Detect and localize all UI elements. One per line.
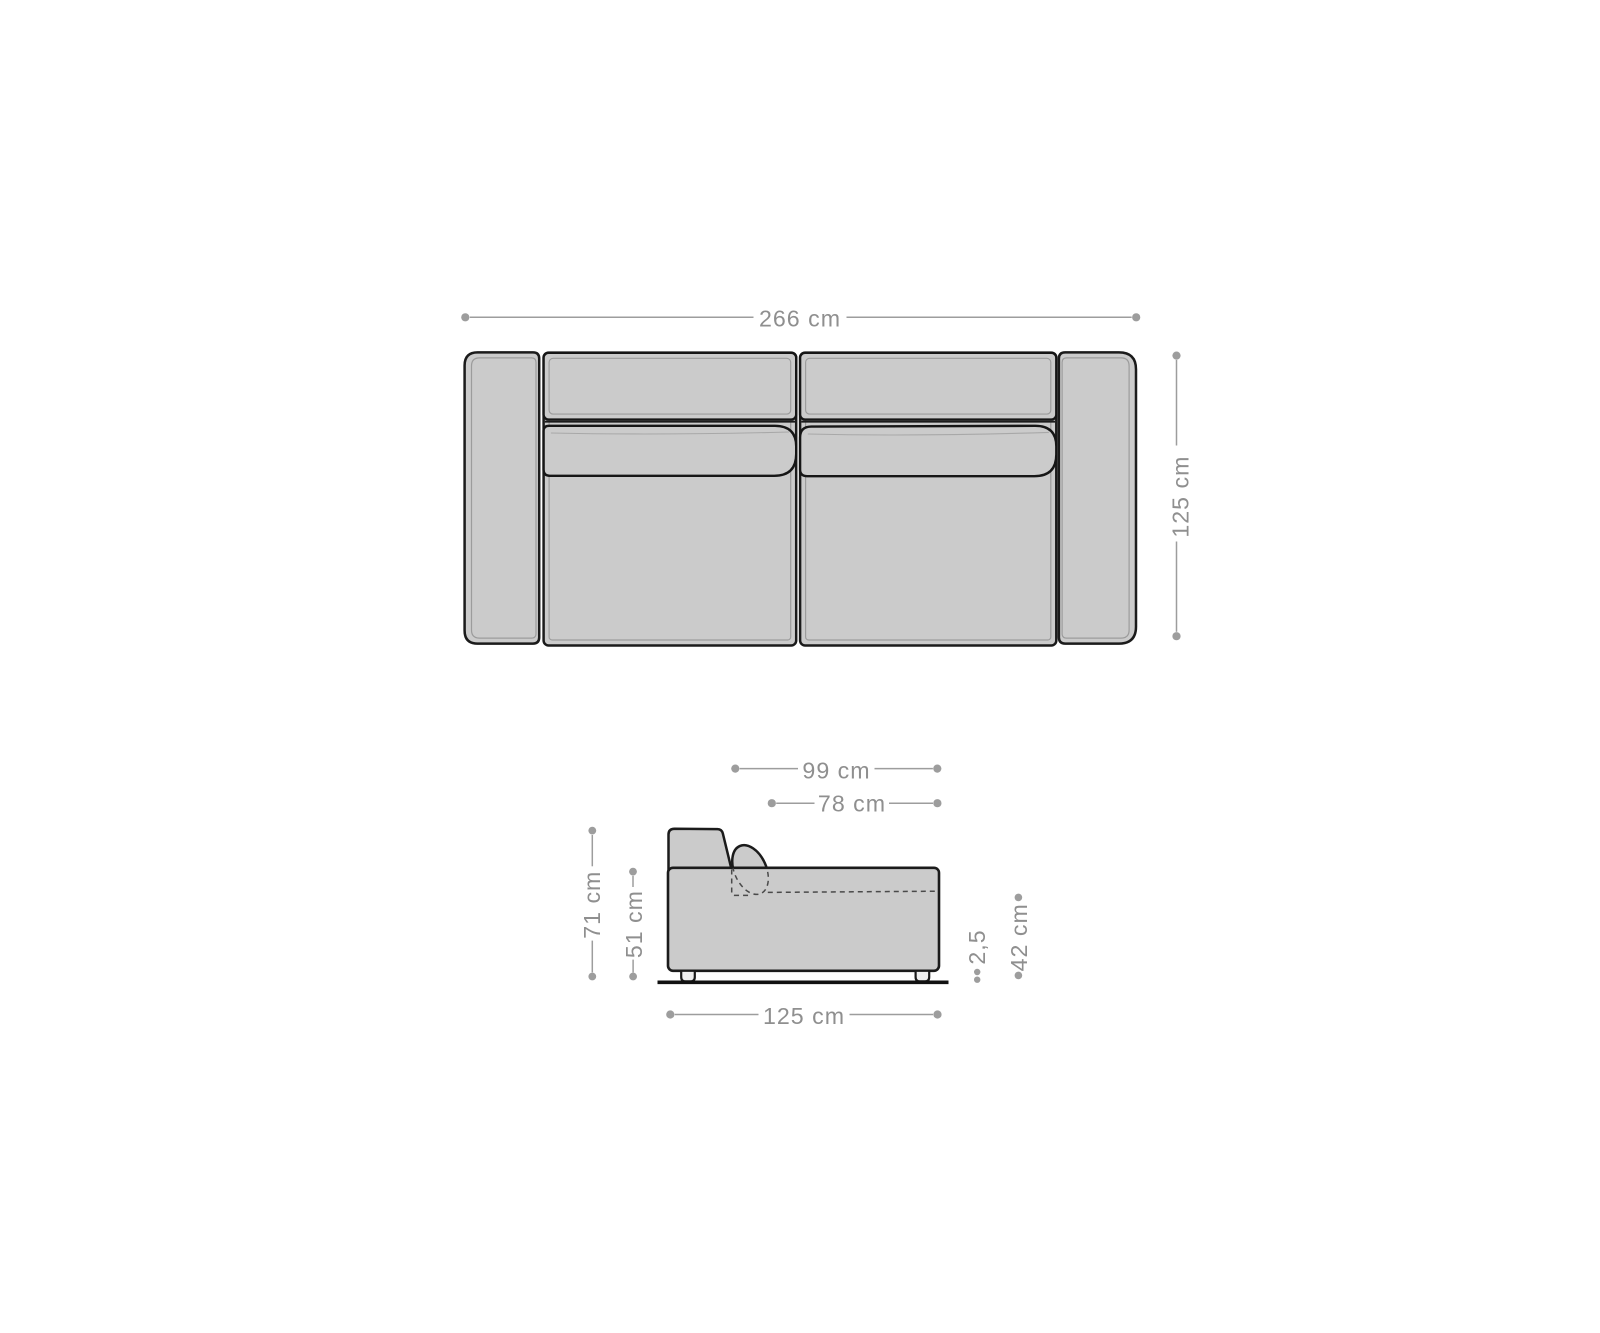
svg-text:125 cm: 125 cm — [763, 1003, 845, 1029]
svg-text:266 cm: 266 cm — [759, 305, 841, 331]
svg-text:99 cm: 99 cm — [802, 757, 870, 783]
svg-text:2,5: 2,5 — [964, 929, 990, 964]
svg-text:125 cm: 125 cm — [1167, 456, 1193, 538]
svg-text:78 cm: 78 cm — [818, 791, 886, 817]
svg-text:71 cm: 71 cm — [579, 871, 605, 939]
svg-text:51 cm: 51 cm — [621, 890, 647, 958]
svg-text:42 cm: 42 cm — [1006, 903, 1032, 971]
